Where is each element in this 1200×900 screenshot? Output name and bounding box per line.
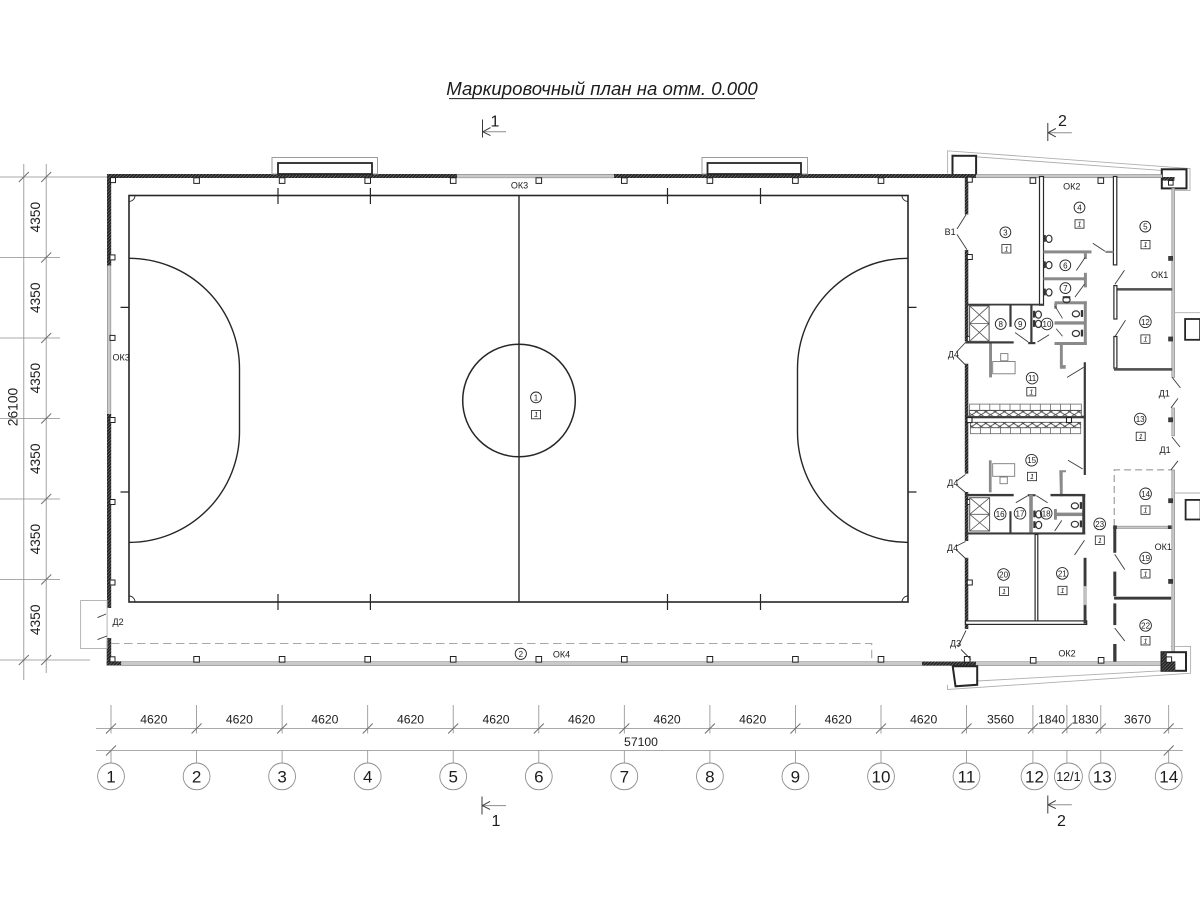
svg-text:7: 7 — [1063, 284, 1068, 293]
svg-text:10: 10 — [872, 767, 891, 786]
svg-text:9: 9 — [1018, 320, 1023, 329]
svg-text:4350: 4350 — [28, 524, 43, 555]
svg-text:17: 17 — [1016, 509, 1025, 518]
svg-text:57100: 57100 — [624, 735, 658, 749]
svg-text:1: 1 — [1098, 536, 1102, 545]
svg-text:16: 16 — [996, 510, 1005, 519]
svg-text:13: 13 — [1136, 415, 1145, 424]
svg-text:1: 1 — [534, 393, 539, 402]
svg-text:3: 3 — [1003, 228, 1008, 237]
svg-text:1: 1 — [1143, 569, 1147, 578]
svg-text:14: 14 — [1159, 767, 1178, 786]
svg-text:4620: 4620 — [825, 713, 852, 727]
svg-text:ОК2: ОК2 — [1063, 182, 1080, 192]
svg-text:4350: 4350 — [28, 604, 43, 635]
svg-text:ОК3: ОК3 — [113, 353, 130, 363]
svg-text:1: 1 — [1139, 432, 1143, 441]
svg-text:3: 3 — [277, 767, 286, 786]
svg-text:1: 1 — [1030, 472, 1034, 481]
svg-text:11: 11 — [958, 767, 976, 786]
svg-text:1840: 1840 — [1038, 713, 1065, 727]
svg-text:23: 23 — [1095, 520, 1104, 529]
svg-text:6: 6 — [534, 767, 543, 786]
svg-text:2: 2 — [1057, 813, 1066, 830]
svg-text:22: 22 — [1141, 621, 1150, 630]
svg-text:4350: 4350 — [28, 443, 43, 474]
svg-text:21: 21 — [1058, 569, 1067, 578]
svg-text:4620: 4620 — [568, 713, 595, 727]
svg-text:9: 9 — [791, 767, 800, 786]
svg-text:1: 1 — [1004, 244, 1008, 253]
svg-text:5: 5 — [1143, 223, 1148, 232]
svg-text:ОК3: ОК3 — [511, 181, 528, 191]
svg-text:1830: 1830 — [1071, 713, 1098, 727]
svg-text:ОК4: ОК4 — [553, 650, 570, 660]
svg-text:12: 12 — [1141, 318, 1150, 327]
svg-text:Д3: Д3 — [950, 639, 961, 649]
svg-text:3670: 3670 — [1124, 713, 1151, 727]
svg-text:1: 1 — [1029, 387, 1033, 396]
svg-text:2: 2 — [1058, 113, 1067, 130]
svg-text:4620: 4620 — [910, 713, 937, 727]
svg-text:4: 4 — [363, 767, 372, 786]
svg-text:14: 14 — [1141, 490, 1150, 499]
svg-text:1: 1 — [1060, 586, 1064, 595]
svg-text:ОК1: ОК1 — [1151, 270, 1168, 280]
svg-text:12: 12 — [1025, 767, 1044, 786]
svg-text:7: 7 — [620, 767, 629, 786]
svg-text:4620: 4620 — [311, 713, 338, 727]
svg-text:1: 1 — [534, 410, 538, 419]
svg-text:4350: 4350 — [28, 202, 43, 233]
svg-text:4620: 4620 — [654, 713, 681, 727]
svg-text:Д4: Д4 — [947, 543, 958, 553]
svg-text:4620: 4620 — [397, 713, 424, 727]
svg-text:4620: 4620 — [140, 713, 167, 727]
svg-text:5: 5 — [448, 767, 457, 786]
svg-text:11: 11 — [1028, 374, 1037, 383]
svg-text:1: 1 — [1077, 220, 1081, 229]
svg-text:4350: 4350 — [28, 363, 43, 394]
svg-text:Д4: Д4 — [948, 350, 959, 360]
svg-text:ОК2: ОК2 — [1058, 649, 1075, 659]
svg-text:8: 8 — [705, 767, 714, 786]
svg-text:2: 2 — [519, 650, 524, 659]
svg-text:4620: 4620 — [739, 713, 766, 727]
svg-text:1: 1 — [1143, 240, 1147, 249]
svg-text:Д1: Д1 — [1159, 389, 1170, 399]
svg-text:2: 2 — [192, 767, 201, 786]
svg-text:18: 18 — [1042, 509, 1051, 518]
svg-text:ОК1: ОК1 — [1155, 542, 1172, 552]
svg-text:Маркировочный план на отм. 0.0: Маркировочный план на отм. 0.000 — [446, 78, 758, 99]
svg-text:6: 6 — [1063, 261, 1068, 270]
svg-text:1: 1 — [491, 114, 500, 131]
svg-text:19: 19 — [1141, 554, 1150, 563]
svg-text:1: 1 — [106, 767, 115, 786]
svg-text:1: 1 — [1002, 587, 1006, 596]
svg-text:4: 4 — [1077, 204, 1082, 213]
svg-text:1: 1 — [1143, 506, 1147, 515]
svg-text:26100: 26100 — [6, 387, 21, 426]
svg-text:15: 15 — [1027, 456, 1036, 465]
svg-text:Д4: Д4 — [947, 478, 958, 488]
svg-text:8: 8 — [998, 320, 1003, 329]
svg-text:1: 1 — [1143, 636, 1147, 645]
svg-text:Д1: Д1 — [1160, 445, 1171, 455]
svg-text:4350: 4350 — [28, 282, 43, 313]
svg-text:3560: 3560 — [987, 713, 1014, 727]
svg-text:1: 1 — [1143, 335, 1147, 344]
svg-text:13: 13 — [1093, 767, 1112, 786]
svg-text:20: 20 — [999, 571, 1008, 580]
svg-text:12/1: 12/1 — [1056, 770, 1080, 784]
svg-text:Д2: Д2 — [113, 617, 124, 627]
svg-text:В1: В1 — [945, 227, 956, 237]
svg-text:4620: 4620 — [482, 713, 509, 727]
svg-text:10: 10 — [1043, 320, 1052, 329]
svg-text:4620: 4620 — [226, 713, 253, 727]
svg-text:1: 1 — [492, 813, 501, 830]
